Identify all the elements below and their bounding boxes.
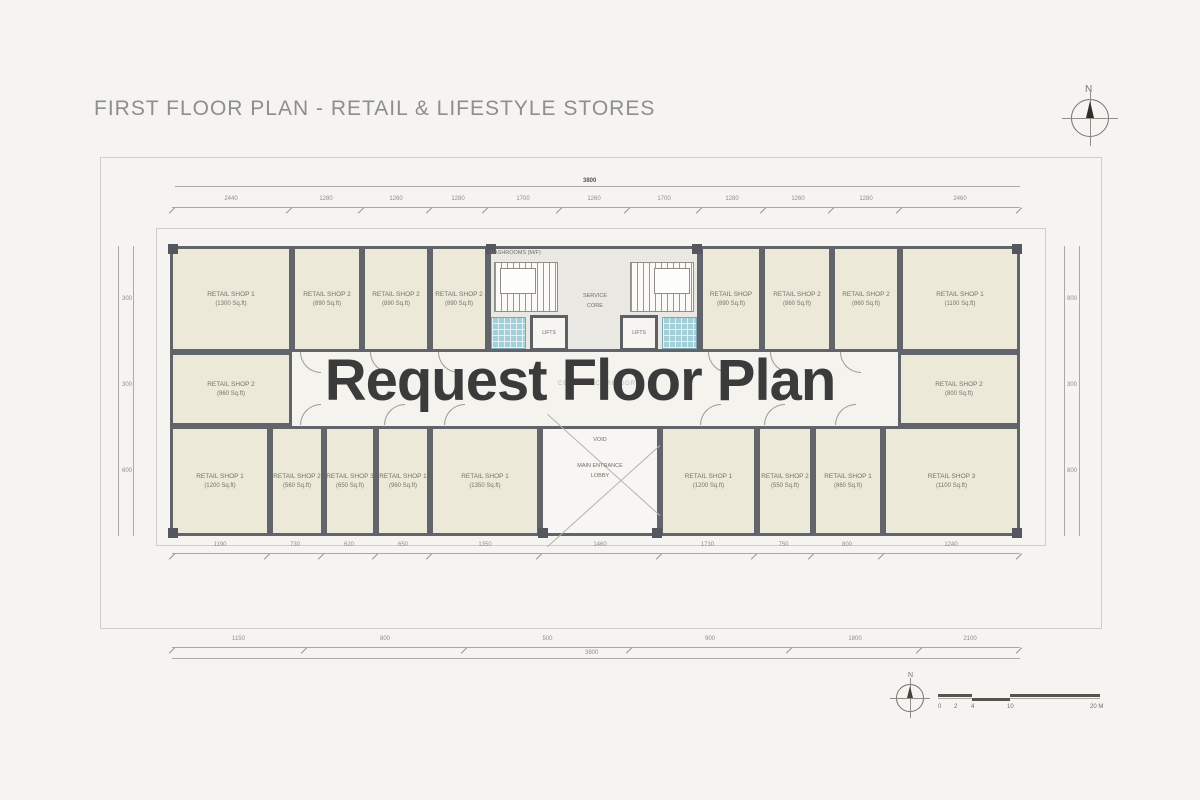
shop-name: RETAIL SHOP 1 — [685, 472, 733, 482]
lift-left: LIFTS — [530, 315, 568, 351]
dim-line-right-2 — [1079, 246, 1080, 536]
dim-segment: 1260 — [764, 198, 832, 208]
dim-segment: 620 — [322, 544, 376, 554]
shop-area: (560 Sq.ft) — [283, 482, 311, 490]
shop-name: RETAIL SHOP 1 — [461, 472, 509, 482]
dim-line-left — [133, 246, 134, 536]
retail-shop: RETAIL SHOP 2 (890 Sq.ft) — [292, 246, 362, 352]
retail-shop: RETAIL SHOP (890 Sq.ft) — [700, 246, 762, 352]
washroom-left — [491, 317, 526, 349]
dim-segment: 650 — [376, 544, 430, 554]
shop-name: RETAIL SHOP 2 — [303, 290, 351, 300]
dim-segment: 1280 — [430, 198, 486, 208]
shop-area: (650 Sq.ft) — [336, 482, 364, 490]
shop-name: RETAIL SHOP 3 — [326, 472, 374, 482]
watermark-text: Request Floor Plan — [280, 352, 880, 410]
shop-area: (890 Sq.ft) — [445, 300, 473, 308]
retail-shop: RETAIL SHOP 2 (560 Sq.ft) — [270, 426, 324, 536]
shop-area: (1350 Sq.ft) — [469, 482, 500, 490]
compass-needle-icon — [1086, 101, 1094, 118]
page-title: FIRST FLOOR PLAN - RETAIL & LIFESTYLE ST… — [94, 97, 655, 121]
dim-segment: 1700 — [628, 198, 700, 208]
dim-segment: 2460 — [900, 198, 1020, 208]
dim-right-value: 300 — [1067, 382, 1077, 388]
shop-area: (960 Sq.ft) — [389, 482, 417, 490]
shop-name: RETAIL SHOP 2 — [207, 380, 255, 390]
dim-line-left-2 — [118, 246, 119, 536]
shop-area: (860 Sq.ft) — [852, 300, 880, 308]
dim-segment: 1280 — [700, 198, 764, 208]
retail-shop: RETAIL SHOP 2 (550 Sq.ft) — [757, 426, 813, 536]
dim-segment: 1280 — [290, 198, 362, 208]
retail-shop: RETAIL SHOP 1 (860 Sq.ft) — [813, 426, 883, 536]
shop-area: (890 Sq.ft) — [382, 300, 410, 308]
dim-segment: 1190 — [172, 544, 268, 554]
dim-right-value: 800 — [1067, 468, 1077, 474]
dim-segment: 2440 — [172, 198, 290, 208]
dim-segment: 1350 — [430, 544, 540, 554]
dim-segment: 1800 — [790, 638, 920, 648]
dim-right-value: 800 — [1067, 296, 1077, 302]
retail-shop: RETAIL SHOP 3 (1100 Sq.ft) — [883, 426, 1020, 536]
shop-area: (1200 Sq.ft) — [693, 482, 724, 490]
dim-segment: 1260 — [560, 198, 628, 208]
scale-bar-baseline — [938, 698, 1100, 699]
shop-name: RETAIL SHOP 2 — [842, 290, 890, 300]
shop-area: (1300 Sq.ft) — [215, 300, 246, 308]
scale-bar: 0 2 4 10 20 M — [938, 690, 1103, 714]
retail-shop: RETAIL SHOP 2 (860 Sq.ft) — [762, 246, 832, 352]
dim-segment: 1280 — [832, 198, 900, 208]
dim-row-top: 2440 1280 1260 1280 1700 1260 1700 1280 … — [172, 198, 1020, 208]
retail-shop: RETAIL SHOP 1 (1200 Sq.ft) — [660, 426, 757, 536]
scale-bar-segment — [1010, 694, 1100, 697]
compass-rose: N — [1058, 84, 1122, 150]
service-core-label: SERVICE CORE — [560, 292, 630, 312]
dim-bottom-overall-value: 3800 — [585, 650, 598, 656]
shop-name: RETAIL SHOP 1 — [824, 472, 872, 482]
wall-pier — [692, 244, 702, 254]
shop-name: RETAIL SHOP 1 — [207, 290, 255, 300]
shop-area: (1200 Sq.ft) — [204, 482, 235, 490]
dim-line-bottom-overall — [172, 658, 1020, 659]
dim-line-right — [1064, 246, 1065, 536]
shop-name: RETAIL SHOP 2 — [761, 472, 809, 482]
wall-pier — [1012, 528, 1022, 538]
shop-name: RETAIL SHOP 1 — [379, 472, 427, 482]
wall-pier — [168, 528, 178, 538]
shop-area: (800 Sq.ft) — [945, 390, 973, 398]
dim-left-value: 300 — [122, 296, 132, 302]
scale-bar-segment — [972, 698, 1010, 701]
shop-name: RETAIL SHOP 2 — [773, 290, 821, 300]
retail-shop: RETAIL SHOP 1 (1350 Sq.ft) — [430, 426, 540, 536]
shop-name: RETAIL SHOP 3 — [928, 472, 976, 482]
dim-row-bottom-2: 1150 800 500 900 1800 2100 — [172, 638, 1020, 648]
floor-plan-page: FIRST FLOOR PLAN - RETAIL & LIFESTYLE ST… — [0, 0, 1200, 800]
retail-shop: RETAIL SHOP 2 (890 Sq.ft) — [362, 246, 430, 352]
dim-segment: 1240 — [882, 544, 1020, 554]
service-core-line1: SERVICE — [560, 292, 630, 302]
shop-name: RETAIL SHOP 2 — [935, 380, 983, 390]
dim-segment: 800 — [305, 638, 465, 648]
retail-shop: RETAIL SHOP 3 (650 Sq.ft) — [324, 426, 376, 536]
service-core-line2: CORE — [560, 302, 630, 312]
lift-label: LIFTS — [542, 330, 556, 336]
lift-label: LIFTS — [632, 330, 646, 336]
wall-pier — [1012, 244, 1022, 254]
stairs-left-landing — [500, 268, 536, 294]
dim-row-bottom-1: 1190 730 620 650 1350 1460 1730 750 800 … — [172, 544, 1020, 554]
retail-shop: RETAIL SHOP 1 (1200 Sq.ft) — [170, 426, 270, 536]
scale-label: 10 — [1007, 704, 1014, 710]
scale-label: 20 M — [1090, 704, 1103, 710]
scale-label: 2 — [954, 704, 957, 710]
wall-pier — [168, 244, 178, 254]
dim-top-overall-value: 3800 — [583, 178, 596, 184]
shop-area: (890 Sq.ft) — [717, 300, 745, 308]
lobby-line1: MAIN ENTRANCE — [560, 462, 640, 472]
shop-name: RETAIL SHOP — [710, 290, 752, 300]
retail-shop: RETAIL SHOP 2 (860 Sq.ft) — [832, 246, 900, 352]
dim-segment: 1260 — [362, 198, 430, 208]
lobby-line2: LOBBY — [560, 472, 640, 482]
shop-name: RETAIL SHOP 2 — [435, 290, 483, 300]
retail-shop: RETAIL SHOP 1 (1300 Sq.ft) — [170, 246, 292, 352]
dim-segment: 1730 — [660, 544, 755, 554]
wall-pier — [538, 528, 548, 538]
shop-name: RETAIL SHOP 1 — [936, 290, 984, 300]
dim-segment: 2100 — [920, 638, 1020, 648]
shop-area: (1100 Sq.ft) — [936, 482, 967, 490]
shop-area: (890 Sq.ft) — [313, 300, 341, 308]
dim-segment: 1150 — [172, 638, 305, 648]
dim-left-value: 300 — [122, 382, 132, 388]
lift-right: LIFTS — [620, 315, 658, 351]
shop-name: RETAIL SHOP 1 — [196, 472, 244, 482]
washroom-right — [662, 317, 697, 349]
wall-pier — [652, 528, 662, 538]
dim-left-value: 600 — [122, 468, 132, 474]
dim-segment: 1700 — [486, 198, 560, 208]
shop-name: RETAIL SHOP 2 — [273, 472, 321, 482]
retail-shop: RETAIL SHOP 2 (800 Sq.ft) — [898, 352, 1020, 426]
washrooms-label: WASHROOMS (M/F) — [489, 250, 541, 256]
dim-segment: 730 — [268, 544, 322, 554]
mini-compass-rose: N — [890, 672, 934, 720]
shop-area: (860 Sq.ft) — [783, 300, 811, 308]
stairs-right-landing — [654, 268, 690, 294]
shop-area: (1100 Sq.ft) — [945, 300, 976, 308]
retail-shop: RETAIL SHOP 1 (1100 Sq.ft) — [900, 246, 1020, 352]
mini-compass-needle-icon — [907, 686, 913, 698]
scale-bar-segment — [938, 694, 972, 697]
shop-area: (550 Sq.ft) — [771, 482, 799, 490]
shop-area: (860 Sq.ft) — [834, 482, 862, 490]
mini-compass-crosshair-v-icon — [910, 678, 911, 718]
shop-area: (860 Sq.ft) — [217, 390, 245, 398]
compass-crosshair-v-icon — [1090, 90, 1091, 146]
dim-segment: 750 — [755, 544, 812, 554]
dim-segment: 800 — [812, 544, 882, 554]
retail-shop: RETAIL SHOP 2 (860 Sq.ft) — [170, 352, 292, 426]
dim-line-top-overall — [175, 186, 1020, 187]
dim-segment: 900 — [630, 638, 790, 648]
dim-segment: 500 — [465, 638, 630, 648]
shop-name: RETAIL SHOP 2 — [372, 290, 420, 300]
scale-label: 0 — [938, 704, 941, 710]
dim-segment: 1460 — [540, 544, 660, 554]
retail-shop: RETAIL SHOP 2 (890 Sq.ft) — [430, 246, 488, 352]
retail-shop: RETAIL SHOP 1 (960 Sq.ft) — [376, 426, 430, 536]
scale-label: 4 — [971, 704, 974, 710]
compass-north-label: N — [1085, 84, 1092, 95]
lobby-label: MAIN ENTRANCE LOBBY — [560, 462, 640, 482]
void-label: VOID — [560, 437, 640, 443]
